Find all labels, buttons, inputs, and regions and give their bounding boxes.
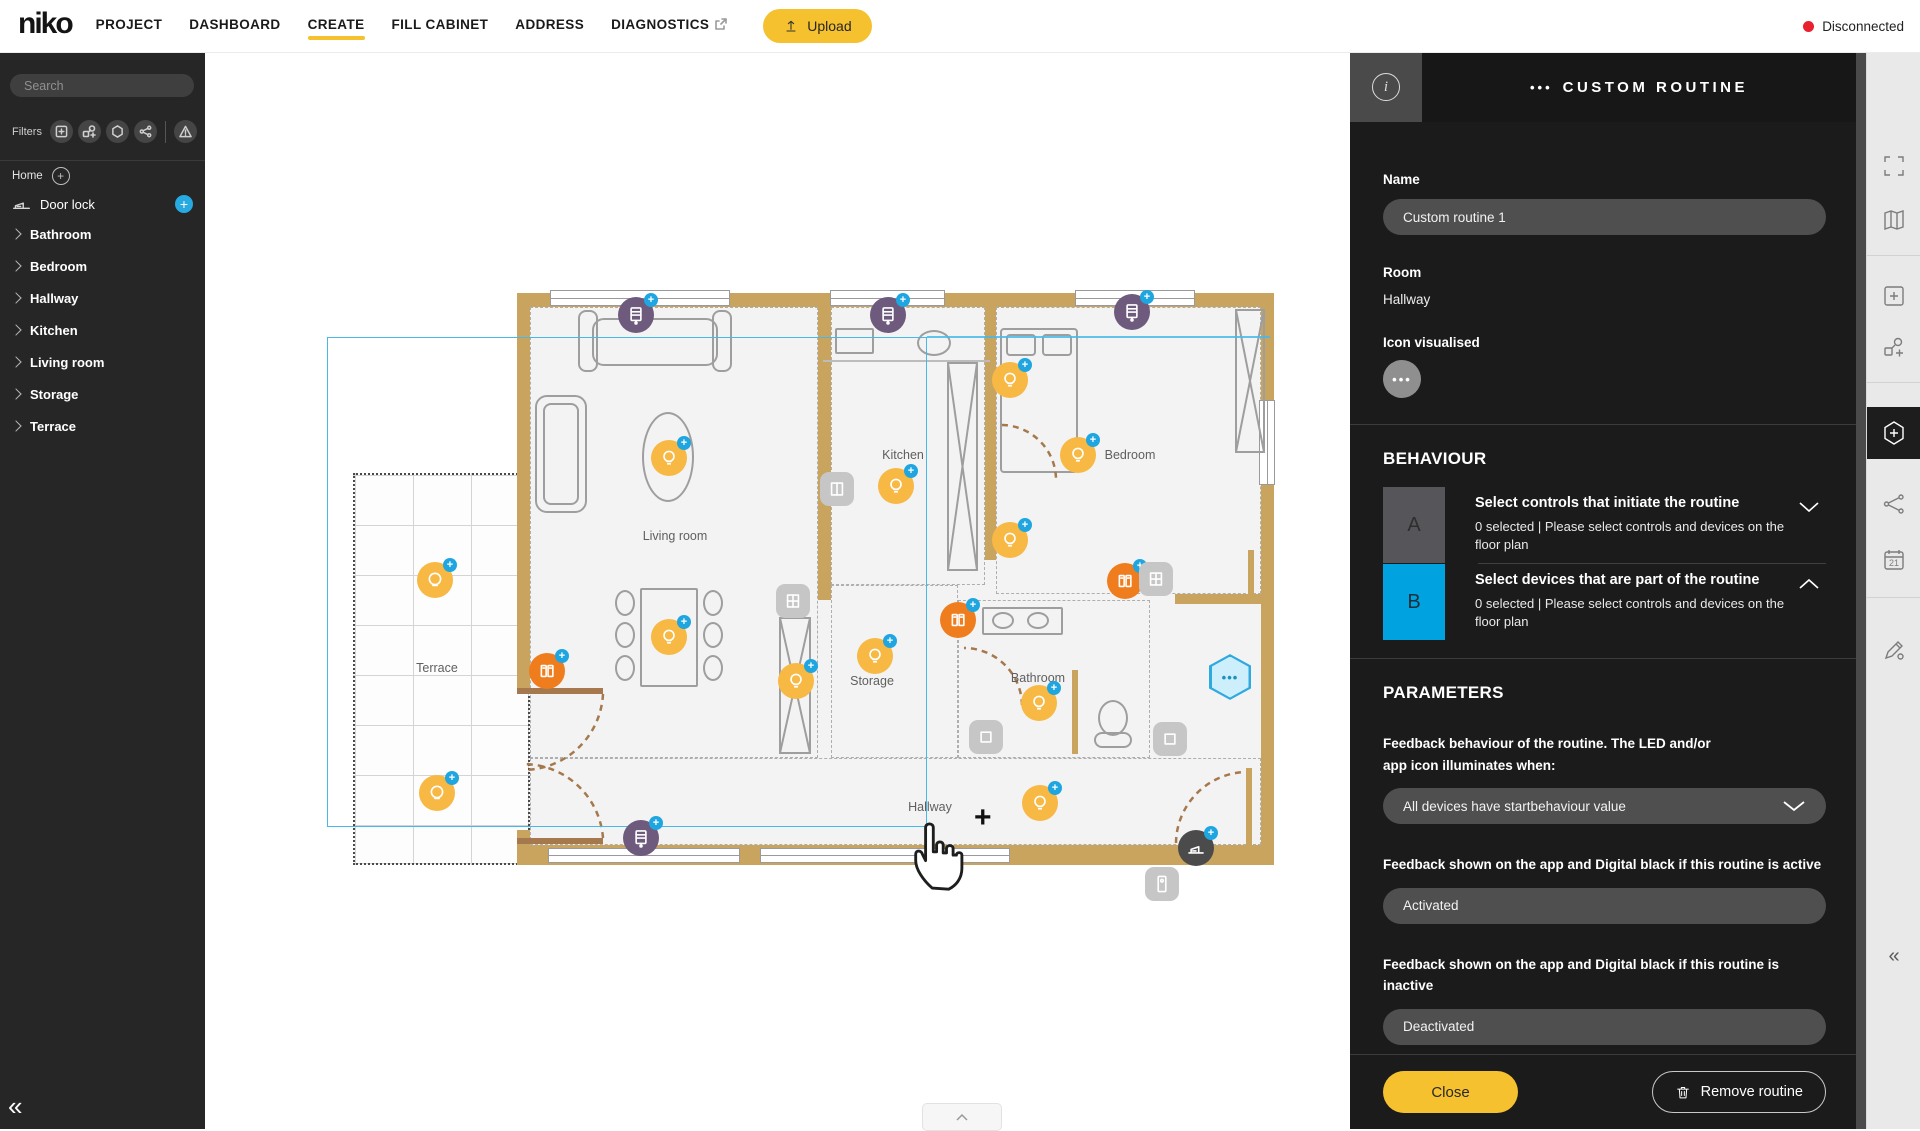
room-label: Room [1383,265,1826,280]
furniture-sink [1027,612,1049,629]
add-badge-icon: + [883,634,897,648]
furniture-sink [992,612,1014,629]
parameters-heading: PARAMETERS [1383,683,1826,703]
map-button[interactable] [1867,194,1920,246]
door-lock-icon[interactable]: + [1178,830,1214,866]
chevron-right-icon [10,292,21,303]
feedback-inactive-input[interactable]: Deactivated [1383,1009,1826,1045]
toolbar-divider [1867,597,1920,598]
add-badge-icon: + [443,558,457,572]
panel-header: i •••CUSTOM ROUTINE [1350,52,1856,122]
map-icon [1882,208,1906,232]
left-sidebar: Search Filters Home + Door lock + Bathro… [0,52,205,1129]
add-badge-icon: + [1204,826,1218,840]
light-icon[interactable]: + [778,663,814,699]
add-badge-icon: + [1086,433,1100,447]
routine-icon-button[interactable]: ••• [1383,360,1421,398]
collapse-sidebar-button[interactable]: « [8,1093,22,1119]
routine-hexagon-icon[interactable]: ••• [1209,654,1251,700]
close-button[interactable]: Close [1383,1071,1518,1113]
add-badge-icon: + [896,293,910,307]
add-badge-icon: + [677,615,691,629]
furniture-toilet [1098,700,1128,736]
niko-logo: niko [18,7,72,41]
filter-link-plus-button[interactable] [78,120,101,143]
add-square-button[interactable] [1867,270,1920,322]
chevron-right-icon [10,324,21,335]
chevron-right-icon [10,388,21,399]
square-plus-icon [1883,285,1905,307]
toolbar-divider [1867,255,1920,256]
behaviour-title-b: Select devices that are part of the rout… [1475,572,1826,588]
add-badge-icon: + [445,771,459,785]
pencil-wrench-icon [1882,638,1906,662]
upload-button[interactable]: Upload [763,9,871,43]
top-bar: niko PROJECT DASHBOARD CREATE FILL CABIN… [0,0,1920,53]
add-badge-icon: + [555,649,569,663]
filters-divider [165,121,166,143]
warning-icon [179,125,192,138]
motor-blind-icon[interactable]: + [1114,294,1150,330]
feedback-behaviour-select[interactable]: All devices have startbehaviour value [1383,788,1826,824]
door-lock-icon [12,197,31,211]
room-label: Terrace [30,419,76,434]
icon-visualised-label: Icon visualised [1383,335,1826,350]
light-icon[interactable]: + [992,522,1028,558]
window [1259,400,1275,485]
panel-body: Name Custom routine 1 Room Hallway Icon … [1350,122,1856,1054]
panel-footer: Close Remove routine [1350,1054,1856,1129]
custom-routine-panel: i •••CUSTOM ROUTINE Name Custom routine … [1350,52,1856,1129]
feedback-active-input[interactable]: Activated [1383,888,1826,924]
room-label: Hallway [30,291,78,306]
room-tree: BathroomBedroomHallwayKitchenLiving room… [0,218,205,442]
panel-title: •••CUSTOM ROUTINE [1422,79,1856,96]
nav-create[interactable]: CREATE [308,11,365,42]
behaviour-row-b[interactable]: B Select devices that are part of the ro… [1383,564,1826,640]
sidebar-item-hallway[interactable]: Hallway [0,282,205,314]
wall [517,830,530,865]
hexagon-plus-icon [1881,420,1907,446]
light-icon[interactable]: + [1022,785,1058,821]
name-label: Name [1383,172,1826,187]
sidebar-item-bathroom[interactable]: Bathroom [0,218,205,250]
wall-control-icon[interactable] [1153,722,1187,756]
chevron-right-icon [10,228,21,239]
svg-text:21: 21 [1889,558,1899,568]
share-icon [139,125,152,138]
sidebar-divider [0,160,205,161]
chevron-right-icon [10,420,21,431]
motor-blind-icon[interactable]: + [618,297,654,333]
status-label: Disconnected [1822,19,1904,34]
add-badge-icon: + [1140,290,1154,304]
wall [985,307,996,560]
share-icon [1882,492,1906,516]
hexagon-icon [111,125,124,138]
add-badge-icon: + [644,293,658,307]
wall-control-icon[interactable] [969,720,1003,754]
filter-square-plus-button[interactable] [50,120,73,143]
behaviour-desc-b: 0 selected | Please select controls and … [1475,595,1795,631]
routine-dots-icon: ••• [1530,80,1553,95]
room-name-label: Bedroom [1105,448,1156,462]
home-row[interactable]: Home + [12,164,70,188]
divider [1350,424,1856,425]
external-link-icon [714,18,727,31]
door-leaf [517,838,603,844]
motor-blind-icon[interactable]: + [870,297,906,333]
behaviour-key-b: B [1383,564,1445,640]
right-toolbar: 21 « [1866,52,1920,1129]
nav-fill-cabinet[interactable]: FILL CABINET [392,11,489,42]
panel-scrollbar[interactable] [1856,52,1866,1129]
room-label: Living room [30,355,104,370]
link-plus-icon [82,125,96,139]
outdoor-light-icon[interactable]: + [419,775,455,811]
fullscreen-icon [1882,154,1906,178]
feedback-behaviour-label: Feedback behaviour of the routine. The L… [1383,733,1723,776]
connection-status: Disconnected [1803,19,1904,34]
home-label: Home [12,170,43,182]
nav-dashboard[interactable]: DASHBOARD [189,11,280,42]
wall [1175,594,1263,604]
room-label: Storage [30,387,78,402]
status-dot-icon [1803,21,1814,32]
add-badge-icon: + [904,464,918,478]
sidebar-item-terrace[interactable]: Terrace [0,410,205,442]
light-icon[interactable]: + [651,440,687,476]
fullscreen-button[interactable] [1867,140,1920,192]
divider [1350,658,1856,659]
sidebar-item-bedroom[interactable]: Bedroom [0,250,205,282]
wall [1261,307,1274,845]
light-icon[interactable]: + [857,638,893,674]
motor-blind-icon[interactable]: + [623,820,659,856]
sidebar-item-living-room[interactable]: Living room [0,346,205,378]
calendar-icon: 21 [1882,548,1906,572]
behaviour-key-a: A [1383,487,1445,563]
add-badge-icon: + [1018,358,1032,372]
wall-control-icon[interactable] [820,472,854,506]
feedback-active-label: Feedback shown on the app and Digital bl… [1383,854,1826,876]
add-badge-icon: + [1018,518,1032,532]
behaviour-row-a[interactable]: A Select controls that initiate the rout… [1383,487,1826,563]
room-label: Bathroom [30,227,91,242]
add-badge-icon: + [966,598,980,612]
search-placeholder: Search [24,79,64,93]
nav-diagnostics[interactable]: DIAGNOSTICS [611,11,727,42]
chevron-down-icon[interactable] [1798,501,1820,513]
light-icon[interactable]: + [1060,437,1096,473]
doorbell-icon[interactable] [1145,867,1179,901]
room-value: Hallway [1383,292,1826,307]
main-nav: PROJECT DASHBOARD CREATE FILL CABINET AD… [96,11,728,42]
behaviour-heading: BEHAVIOUR [1383,449,1826,469]
add-badge-icon: + [1048,781,1062,795]
sidebar-item-kitchen[interactable]: Kitchen [0,314,205,346]
sidebar-item-door-lock[interactable]: Door lock + [12,192,193,216]
collapse-panel-button[interactable]: « [1867,945,1920,968]
feedback-inactive-label: Feedback shown on the app and Digital bl… [1383,954,1826,997]
calendar-button[interactable]: 21 [1867,534,1920,586]
link-plus-icon [1882,336,1906,360]
filters-label: Filters [12,126,42,138]
chevron-right-icon [10,260,21,271]
share-button[interactable] [1867,478,1920,530]
heating-icon[interactable]: + [1107,563,1143,599]
chevron-down-icon [1782,800,1806,812]
light-icon[interactable]: + [992,362,1028,398]
nav-address[interactable]: ADDRESS [515,11,584,42]
filter-warning-button[interactable] [174,120,197,143]
furniture-toilet-base [1094,732,1132,748]
filter-hexagon-button[interactable] [106,120,129,143]
heating-icon[interactable]: + [529,653,565,689]
add-badge-icon: + [1047,681,1061,695]
add-badge-icon: + [649,816,663,830]
filters-row: Filters [12,120,197,143]
upload-icon [783,18,799,34]
sidebar-item-storage[interactable]: Storage [0,378,205,410]
light-icon[interactable]: + [878,468,914,504]
tools-button[interactable] [1867,624,1920,676]
door-lock-label: Door lock [40,197,95,212]
toolbar-divider [1867,382,1920,383]
behaviour-title-a: Select controls that initiate the routin… [1475,495,1826,511]
routine-hexagon-button[interactable] [1867,407,1920,459]
add-badge-icon: + [677,436,691,450]
room-label: Bedroom [30,259,87,274]
heating-icon[interactable]: + [940,602,976,638]
wall [1072,670,1078,754]
room-label: Kitchen [30,323,78,338]
light-icon[interactable]: + [1021,685,1057,721]
light-icon[interactable]: + [651,619,687,655]
chevron-right-icon [10,356,21,367]
info-tab[interactable]: i [1350,52,1422,122]
nav-project[interactable]: PROJECT [96,11,163,42]
add-door-lock-button[interactable]: + [175,195,193,213]
outdoor-light-icon[interactable]: + [417,562,453,598]
cursor-hand-add-icon: + [908,815,974,893]
info-icon: i [1372,73,1400,101]
bottom-drawer-handle[interactable] [922,1103,1002,1131]
add-icon[interactable]: + [52,167,70,185]
wall-control-icon[interactable] [1139,562,1173,596]
name-input[interactable]: Custom routine 1 [1383,199,1826,235]
trash-icon [1675,1084,1691,1101]
remove-routine-button[interactable]: Remove routine [1652,1071,1826,1113]
wall [1246,768,1252,848]
behaviour-desc-a: 0 selected | Please select controls and … [1475,518,1795,554]
square-plus-icon [55,125,68,138]
chevron-up-icon[interactable] [1798,578,1820,590]
add-link-button[interactable] [1867,322,1920,374]
filter-share-button[interactable] [134,120,157,143]
selection-line [927,336,1270,338]
search-input[interactable]: Search [10,74,194,97]
chevron-up-icon [956,1114,968,1121]
wall-control-icon[interactable] [776,584,810,618]
wall [1248,550,1254,595]
add-badge-icon: + [804,659,818,673]
